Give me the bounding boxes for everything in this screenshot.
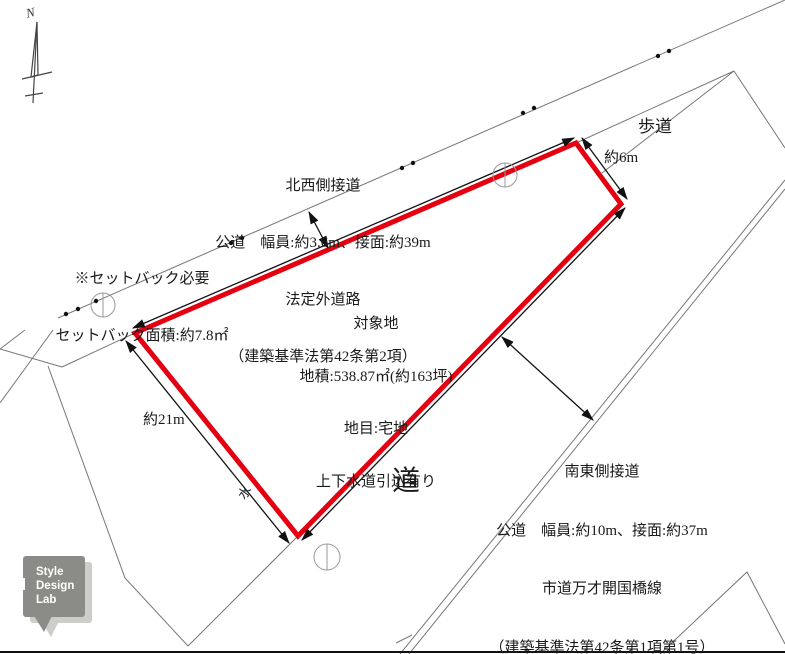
dim-6m-line xyxy=(582,138,627,199)
se-road-title: 南東側接道 xyxy=(453,463,751,483)
logo-line-3: Lab xyxy=(36,593,74,607)
utility-pole-icon xyxy=(314,544,340,570)
se-road-name: 市道万才開国橋線 xyxy=(453,580,751,600)
subject-title: 対象地 xyxy=(251,316,501,334)
bottom-vertex-line xyxy=(188,536,298,646)
logo-notch xyxy=(21,578,25,590)
sidewalk-label: 歩道 xyxy=(638,118,672,135)
setback-area: セットバック面積:約7.8㎡ xyxy=(38,327,246,346)
site-plan: N 北西側接道 公道 幅員:約3.6m、接面:約39m 法定外道路 （建築基準法… xyxy=(0,0,785,654)
setback-required: ※セットバック必要 xyxy=(38,270,246,289)
north-arrow-icon xyxy=(22,22,52,103)
subject-area: 地積:538.87㎡(約163坪) xyxy=(251,369,501,387)
dim-21m-label: 約21m xyxy=(143,413,185,428)
road-label: 道 xyxy=(392,468,420,496)
logo-line-1: Style xyxy=(36,565,74,579)
se-road-width-arrow xyxy=(502,337,593,420)
setback-note: ※セットバック必要 セットバック面積:約7.8㎡ xyxy=(38,232,246,384)
southeast-road-note: 南東側接道 公道 幅員:約10m、接面:約37m 市道万才開国橋線 （建築基準法… xyxy=(453,424,751,654)
style-design-lab-logo: Style Design Lab xyxy=(21,555,111,640)
logo-bubble-tail xyxy=(33,614,53,632)
se-road-width: 公道 幅員:約10m、接面:約37m xyxy=(453,522,751,542)
logo-line-2: Design xyxy=(36,579,74,593)
logo-text: Style Design Lab xyxy=(36,565,74,607)
nw-road-title: 北西側接道 xyxy=(197,177,449,196)
se-road-law: （建築基準法第42条第1項第1号） xyxy=(453,639,751,654)
sidewalk-outer-line xyxy=(734,71,785,148)
left-parcel-line-2 xyxy=(0,330,25,349)
dim-6m-label: 約6m xyxy=(604,151,638,166)
